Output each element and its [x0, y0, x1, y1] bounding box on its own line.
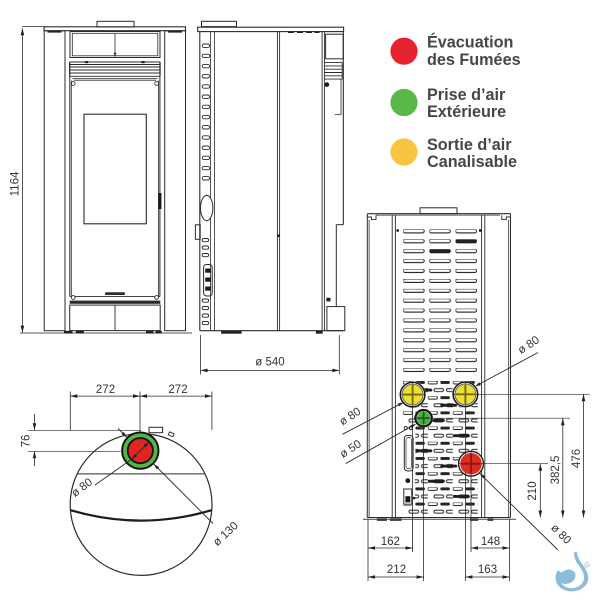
svg-text:R: R: [586, 564, 589, 568]
svg-text:476: 476: [571, 449, 583, 468]
svg-text:212: 212: [387, 564, 406, 576]
svg-text:382,5: 382,5: [550, 456, 562, 485]
svg-text:Canalisable: Canalisable: [427, 153, 517, 171]
svg-text:Prise d’air: Prise d’air: [427, 86, 506, 104]
svg-text:162: 162: [381, 536, 400, 548]
svg-text:272: 272: [168, 384, 187, 396]
svg-text:210: 210: [527, 481, 539, 500]
svg-text:272: 272: [96, 384, 115, 396]
svg-text:ø 540: ø 540: [255, 356, 284, 368]
svg-text:163: 163: [478, 564, 497, 576]
svg-text:des Fumées: des Fumées: [427, 51, 521, 69]
svg-text:Évacuation: Évacuation: [427, 33, 513, 52]
svg-text:Extérieure: Extérieure: [427, 103, 506, 121]
svg-text:76: 76: [21, 435, 33, 448]
svg-text:Sortie d’air: Sortie d’air: [427, 136, 512, 154]
svg-text:1164: 1164: [10, 171, 22, 196]
svg-text:148: 148: [481, 536, 500, 548]
